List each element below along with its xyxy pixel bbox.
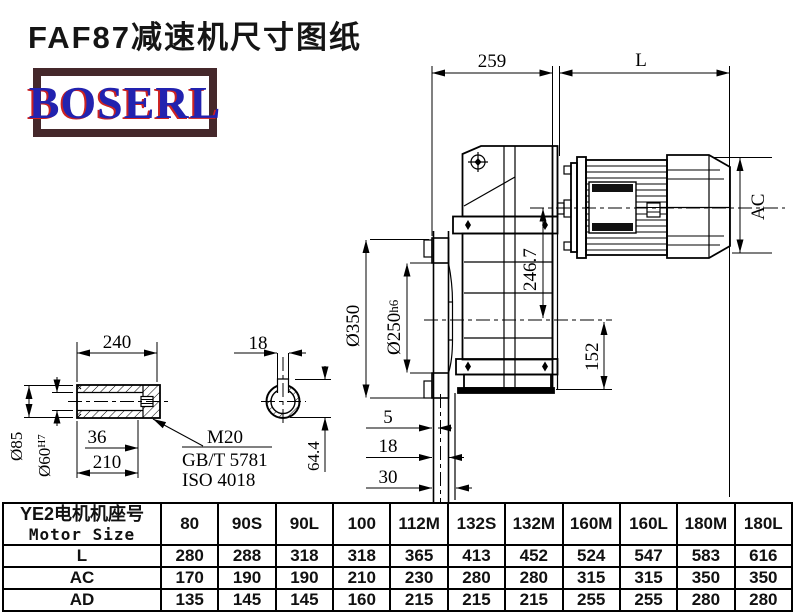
size-table-body: L280288318318365413452524547583616AC1701… [3,545,792,611]
size-table-header-row: YE2电机机座号 Motor Size 8090S90L100112M132S1… [3,503,792,545]
row-label: L [3,545,161,567]
dim-259: 259 [478,51,507,72]
motor-size-table: YE2电机机座号 Motor Size 8090S90L100112M132S1… [2,502,793,612]
dim-18: 18 [379,436,398,457]
dimension-lines [366,66,772,497]
table-row: AD135145145160215215215255255280280 [3,589,792,611]
dim-64-4: 64.4 [304,441,323,471]
size-value-cell: 280 [161,545,218,567]
dim-240: 240 [103,332,132,353]
flange-bolts [465,220,548,372]
dim-L: L [635,50,647,71]
motor-size-column: 80 [161,503,218,545]
dim-152: 152 [582,343,603,372]
row-label: AD [3,589,161,611]
size-value-cell: 210 [333,567,390,589]
motor-size-column: 90L [276,503,333,545]
size-value-cell: 365 [390,545,447,567]
motor-size-column: 132M [505,503,562,545]
dim-dia250-tolerance: h6 [386,299,401,313]
size-value-cell: 215 [505,589,562,611]
bolt-symbol [468,152,488,172]
size-value-cell: 135 [161,589,218,611]
label-gbt-5781: GB/T 5781 [182,450,268,471]
size-value-cell: 318 [276,545,333,567]
table-row: AC170190190210230280280315315350350 [3,567,792,589]
size-value-cell: 413 [448,545,505,567]
motor-size-header-cn: YE2电机机座号 [4,504,160,525]
motor-size-column: 90S [218,503,275,545]
dim-5: 5 [383,407,393,428]
table-row: L280288318318365413452524547583616 [3,545,792,567]
size-value-cell: 190 [218,567,275,589]
dim-36: 36 [88,427,107,448]
size-value-cell: 230 [390,567,447,589]
dimension-drawing: 259 L AC 246.7 152 Ø350 Ø250h6 5 18 30 [0,0,800,502]
size-value-cell: 616 [735,545,792,567]
drawing-sheet: FAF87减速机尺寸图纸 BOSERL [0,0,800,614]
motor-size-column: 160L [620,503,677,545]
size-value-cell: 215 [390,589,447,611]
size-value-cell: 190 [276,567,333,589]
size-value-cell: 547 [620,545,677,567]
dim-30: 30 [379,467,398,488]
size-value-cell: 255 [620,589,677,611]
size-value-cell: 280 [448,567,505,589]
size-value-cell: 315 [620,567,677,589]
dim-18-keyway: 18 [249,333,268,354]
motor-size-header-en: Motor Size [4,525,160,544]
motor-size-column: 132S [448,503,505,545]
shaft-detail-view: 240 Ø85 Ø60H7 36 210 M20 GB/T 5781 ISO 4… [7,332,272,491]
motor-size-column: 112M [390,503,447,545]
size-value-cell: 350 [735,567,792,589]
motor-size-column: 100 [333,503,390,545]
dim-dia250-value: Ø250 [384,313,405,355]
row-label: AC [3,567,161,589]
dim-dia350: Ø350 [343,305,364,347]
dim-dia85: Ø85 [7,432,26,461]
size-value-cell: 315 [563,567,620,589]
output-flange [424,231,455,502]
size-value-cell: 288 [218,545,275,567]
size-value-cell: 280 [677,589,734,611]
dim-246-7: 246.7 [520,248,541,291]
dim-AC: AC [748,194,769,220]
motor-size-header-cell: YE2电机机座号 Motor Size [3,503,161,545]
size-value-cell: 280 [735,589,792,611]
dim-dia250h6: Ø250h6 [384,299,405,355]
size-value-cell: 524 [563,545,620,567]
size-value-cell: 160 [333,589,390,611]
size-value-cell: 452 [505,545,562,567]
dim-dia60-tolerance: H7 [36,434,48,448]
size-value-cell: 350 [677,567,734,589]
size-value-cell: 280 [505,567,562,589]
motor-size-column: 160M [563,503,620,545]
dim-210: 210 [93,452,122,473]
size-value-cell: 583 [677,545,734,567]
motor-size-column: 180M [677,503,734,545]
dim-dia60H7: Ø60H7 [35,434,54,477]
size-value-cell: 145 [218,589,275,611]
size-value-cell: 318 [333,545,390,567]
size-value-cell: 215 [448,589,505,611]
size-value-cell: 255 [563,589,620,611]
gearbox-outline [453,146,558,393]
label-m20: M20 [207,427,243,448]
label-iso-4018: ISO 4018 [182,470,255,491]
size-value-cell: 145 [276,589,333,611]
motor-outline [558,155,731,258]
dim-dia60-value: Ø60 [35,448,54,477]
motor-size-column: 180L [735,503,792,545]
size-value-cell: 170 [161,567,218,589]
